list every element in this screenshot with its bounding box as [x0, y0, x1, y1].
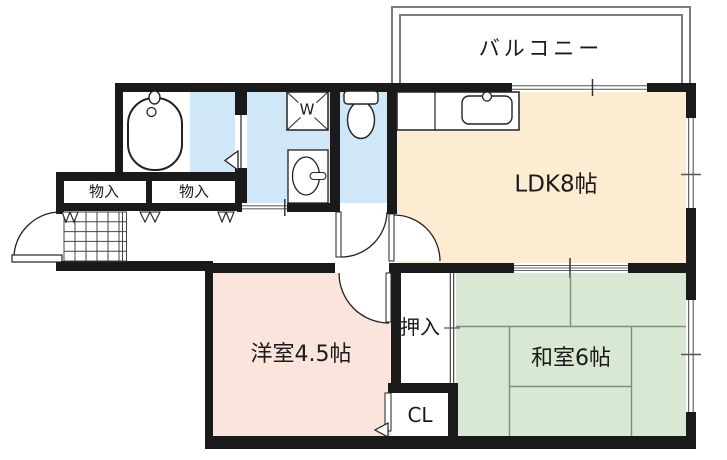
label-western-room: 洋室4.5帖: [251, 344, 352, 366]
label-ldk: LDK8帖: [514, 174, 597, 197]
label-oshiire: 押入: [400, 317, 440, 337]
kitchen-counter: [397, 92, 519, 130]
label-storage-1: 物入: [89, 185, 119, 200]
label-storage-2: 物入: [179, 185, 209, 200]
kitchen-faucet-icon: [483, 92, 492, 101]
label-cl: CL: [407, 405, 432, 425]
bathtub-icon: [128, 91, 182, 170]
storage-door-markers: [62, 212, 234, 222]
toilet-door: [336, 212, 387, 257]
washbasin-icon: [288, 150, 328, 203]
floor-plan: バルコニー LDK8帖 物入 物入 W 押入 CL 洋室4.5帖 和室6帖: [0, 0, 727, 460]
label-washer: W: [298, 103, 317, 118]
label-balcony: バルコニー: [479, 39, 604, 60]
floorplan-canvas: [0, 0, 727, 460]
label-japanese-room: 和室6帖: [531, 348, 611, 370]
entry-door: [12, 212, 62, 262]
